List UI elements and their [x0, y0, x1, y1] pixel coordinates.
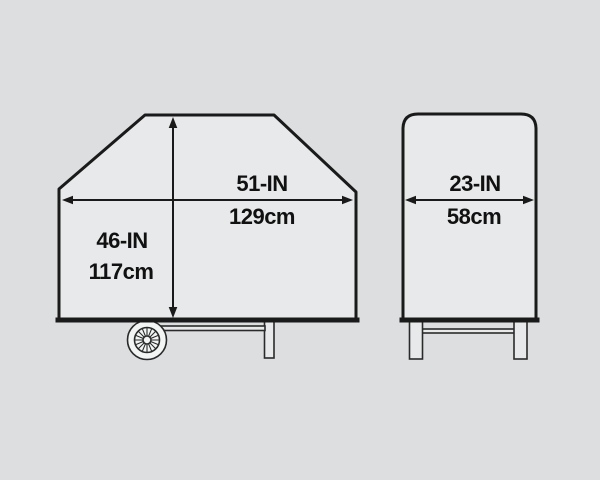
front-height-label-cm: 117cm [89, 259, 154, 284]
side-leg-right [514, 320, 527, 359]
side-leg-left [410, 320, 423, 359]
front-height-label-inches: 46-IN [96, 228, 147, 253]
side-depth-label-cm: 58cm [447, 204, 501, 229]
front-width-label-cm: 129cm [229, 204, 295, 229]
front-leg [265, 320, 275, 358]
wheel-hub [143, 336, 151, 344]
side-depth-label-inches: 23-IN [449, 171, 500, 196]
front-axle-bar [160, 326, 265, 331]
grill-cover-dimension-diagram: 51-IN 129cm 46-IN 117cm [0, 0, 600, 480]
diagram-canvas: 51-IN 129cm 46-IN 117cm [0, 0, 600, 480]
front-width-label-inches: 51-IN [236, 171, 287, 196]
side-view: 23-IN 58cm [402, 114, 537, 359]
side-crossbar [418, 329, 518, 333]
wheel-icon [128, 321, 167, 360]
